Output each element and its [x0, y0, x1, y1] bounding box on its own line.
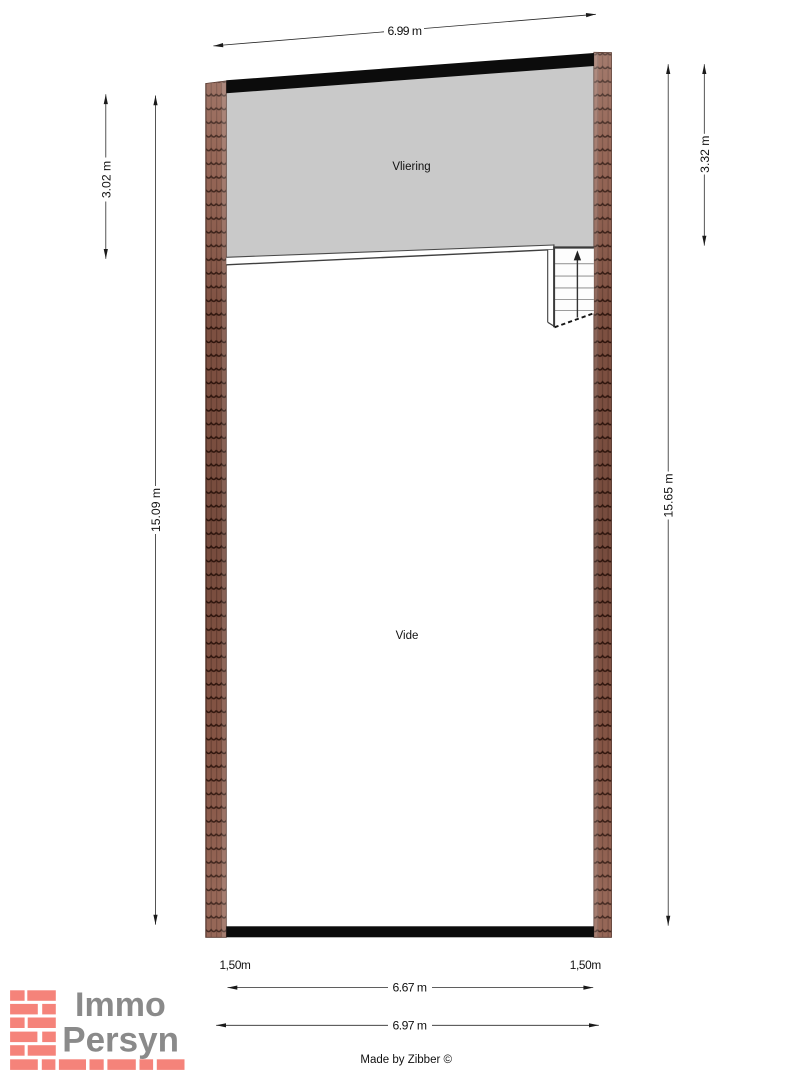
svg-text:3.32 m: 3.32 m [698, 136, 712, 173]
svg-text:Vliering: Vliering [392, 161, 430, 173]
svg-text:6.99 m: 6.99 m [388, 24, 422, 38]
svg-text:1,50m: 1,50m [219, 958, 251, 972]
svg-text:Persyn: Persyn [62, 1021, 179, 1060]
svg-text:6.67 m: 6.67 m [393, 981, 427, 995]
svg-text:1,50m: 1,50m [570, 958, 602, 972]
svg-text:15.65 m: 15.65 m [662, 473, 676, 517]
svg-text:6.97 m: 6.97 m [393, 1018, 427, 1032]
svg-text:3.02 m: 3.02 m [99, 161, 113, 198]
svg-text:Made by Zibber ©: Made by Zibber © [360, 1054, 452, 1066]
svg-text:Immo: Immo [75, 986, 166, 1024]
svg-text:15.09 m: 15.09 m [149, 488, 163, 532]
svg-text:Vide: Vide [396, 630, 419, 642]
